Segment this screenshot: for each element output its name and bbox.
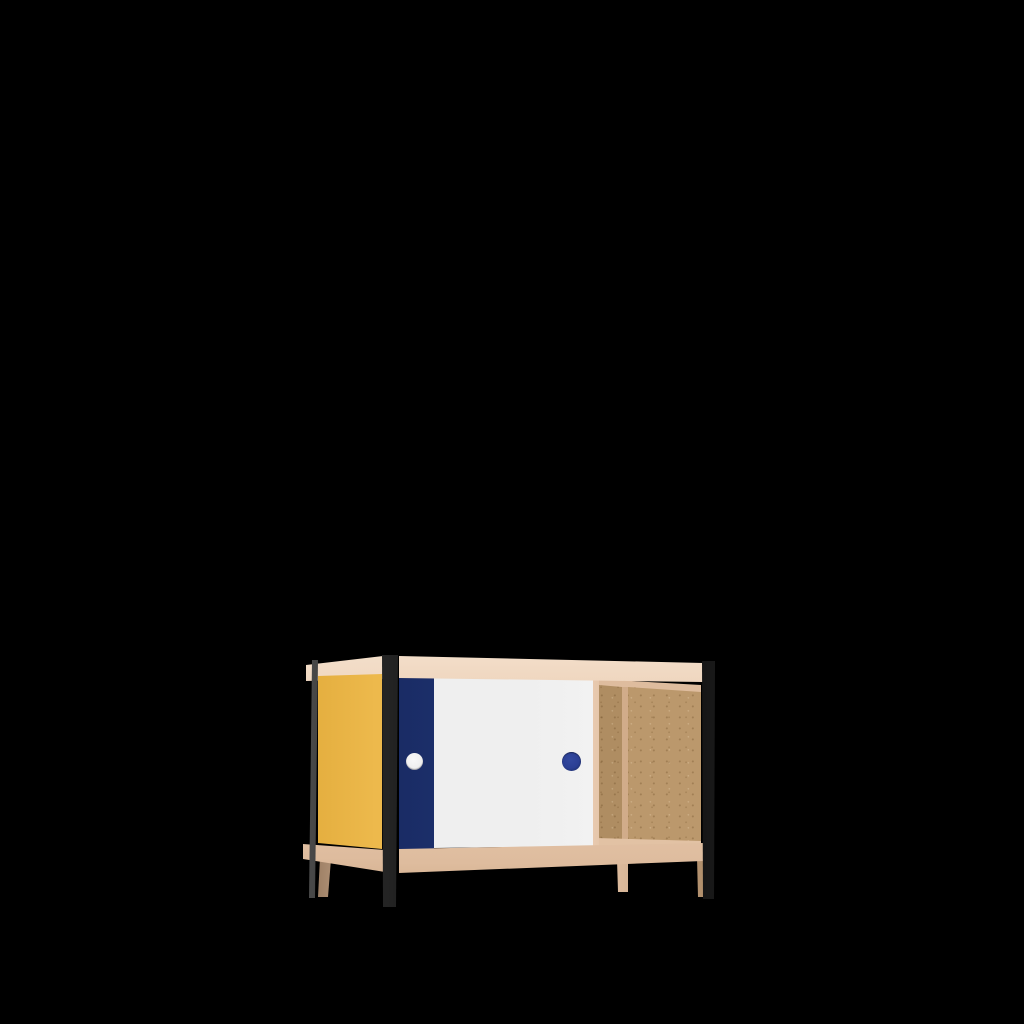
scene-background xyxy=(0,0,1024,1024)
blue-round-handle xyxy=(562,752,581,771)
white-round-handle xyxy=(406,753,423,770)
sideboard-cabinet xyxy=(300,648,720,910)
